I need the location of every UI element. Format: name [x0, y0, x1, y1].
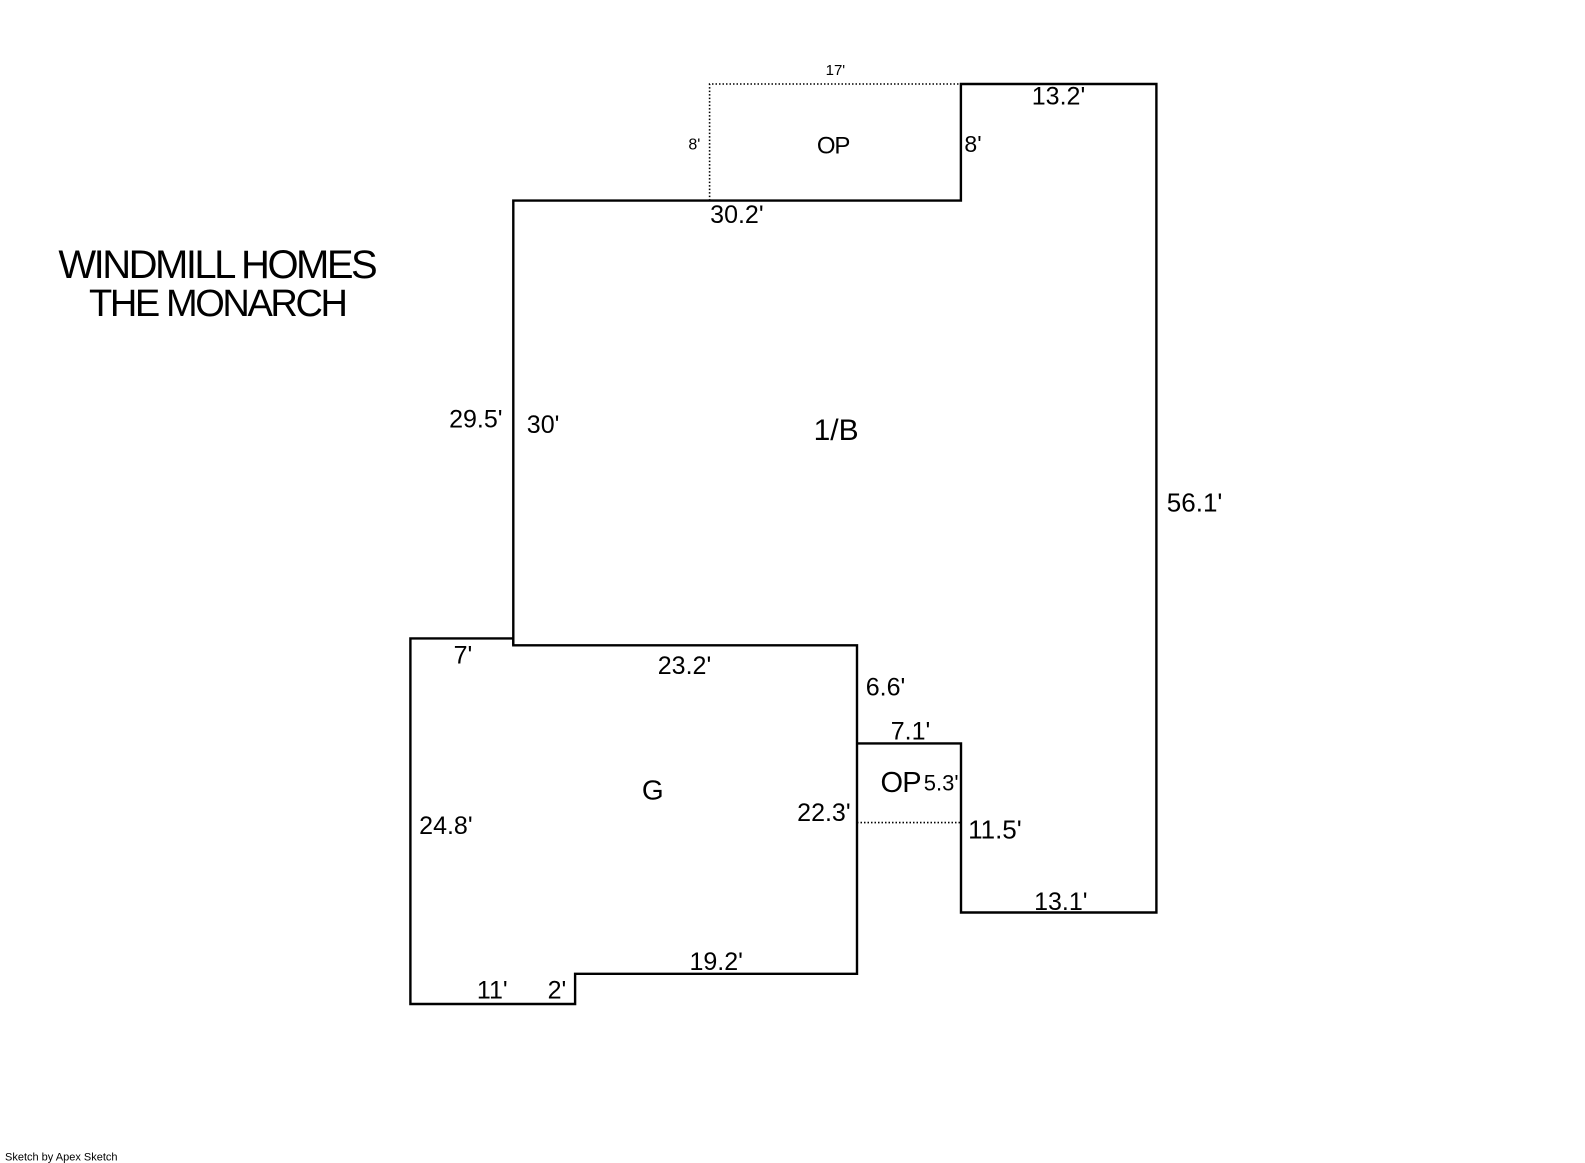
svg-text:11': 11' — [477, 976, 508, 1004]
svg-text:23.2': 23.2' — [658, 652, 711, 680]
svg-text:5.3': 5.3' — [924, 770, 959, 795]
svg-text:6.6': 6.6' — [866, 674, 906, 702]
svg-text:OP: OP — [817, 132, 849, 159]
svg-text:11.5': 11.5' — [968, 815, 1022, 845]
svg-text:56.1': 56.1' — [1167, 487, 1223, 517]
svg-text:7.1': 7.1' — [891, 718, 931, 746]
svg-text:30.2': 30.2' — [710, 201, 763, 229]
svg-text:1/B: 1/B — [814, 414, 859, 447]
svg-text:Sketch by Apex Sketch: Sketch by Apex Sketch — [5, 1152, 118, 1163]
svg-text:8': 8' — [688, 137, 700, 154]
svg-text:13.1': 13.1' — [1034, 888, 1087, 916]
svg-text:7': 7' — [454, 641, 473, 669]
svg-text:THE MONARCH: THE MONARCH — [89, 283, 346, 325]
svg-text:22.3': 22.3' — [797, 799, 850, 827]
svg-text:30': 30' — [527, 411, 560, 439]
svg-text:13.2': 13.2' — [1032, 83, 1085, 111]
svg-text:19.2': 19.2' — [689, 948, 742, 976]
svg-text:WINDMILL HOMES: WINDMILL HOMES — [58, 243, 376, 287]
svg-text:OP: OP — [881, 767, 921, 799]
svg-text:24.8': 24.8' — [419, 812, 472, 840]
svg-text:17': 17' — [826, 62, 846, 79]
svg-text:G: G — [642, 775, 664, 806]
svg-text:29.5': 29.5' — [449, 405, 502, 433]
svg-text:8': 8' — [964, 131, 981, 157]
svg-text:2': 2' — [548, 976, 567, 1004]
